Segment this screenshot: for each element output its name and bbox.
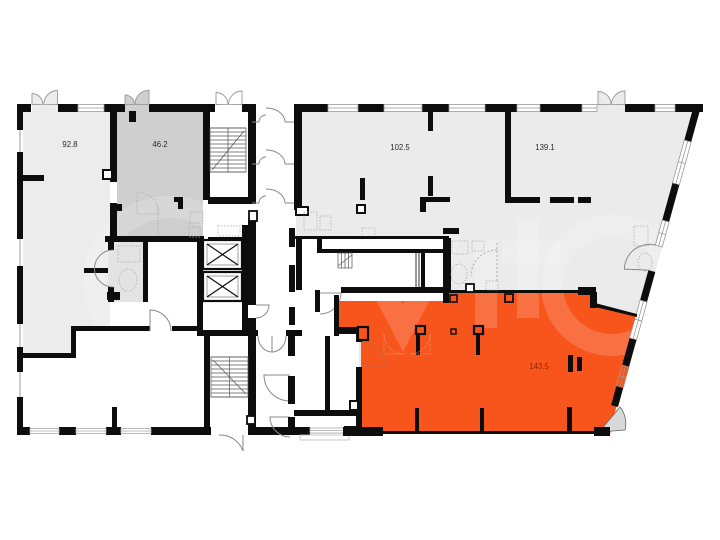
svg-text:102.5: 102.5 (390, 143, 410, 152)
svg-text:46.2: 46.2 (152, 140, 167, 149)
svg-text:92.8: 92.8 (62, 140, 77, 149)
svg-text:139.1: 139.1 (535, 143, 555, 152)
svg-text:143.5: 143.5 (529, 362, 549, 371)
